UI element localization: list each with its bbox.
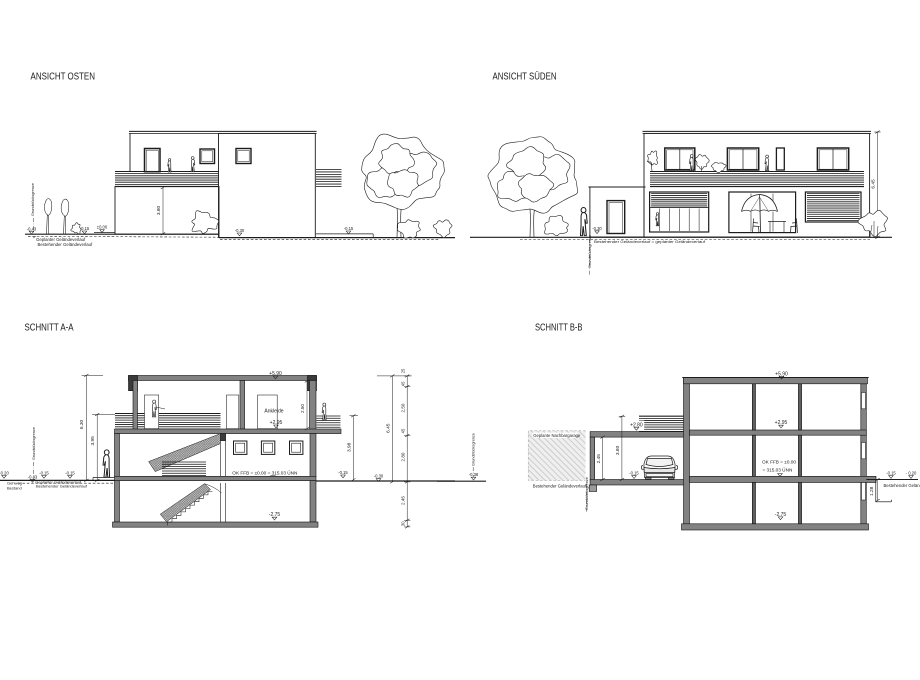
svg-text:3.80: 3.80 bbox=[156, 206, 162, 216]
svg-text:SCHNITT B-B: SCHNITT B-B bbox=[535, 323, 583, 334]
svg-text:Bestehender Geländeverlauf = g: Bestehender Geländeverlauf = geplanter G… bbox=[594, 239, 706, 244]
svg-text:-0.15: -0.15 bbox=[65, 470, 75, 475]
svg-text:Grundstücksgrenze: Grundstücksgrenze bbox=[32, 427, 36, 460]
svg-text:Bestand: Bestand bbox=[7, 486, 22, 491]
svg-text:Geplante Nachbargarage: Geplante Nachbargarage bbox=[533, 433, 581, 438]
svg-text:6.45: 6.45 bbox=[385, 423, 391, 433]
svg-text:45: 45 bbox=[400, 381, 405, 386]
svg-text:Bestehender Geländeverlauf: Bestehender Geländeverlauf bbox=[38, 242, 94, 247]
svg-text:Bestehender Geländeverlauf: Bestehender Geländeverlauf bbox=[36, 483, 88, 488]
svg-text:-0.15: -0.15 bbox=[338, 470, 348, 475]
svg-text:Grundstücksgrenze: Grundstücksgrenze bbox=[472, 433, 476, 466]
svg-text:3.80: 3.80 bbox=[615, 445, 621, 455]
svg-text:2.45: 2.45 bbox=[596, 454, 602, 464]
svg-text:-0.38: -0.38 bbox=[469, 472, 479, 477]
svg-text:2.50: 2.50 bbox=[400, 403, 405, 412]
svg-text:2.80: 2.80 bbox=[400, 452, 405, 461]
svg-text:- 0.20: - 0.20 bbox=[906, 471, 917, 476]
svg-text:ANSICHT SÜDEN: ANSICHT SÜDEN bbox=[493, 72, 557, 83]
svg-text:= 315.03 ÜNN: = 315.03 ÜNN bbox=[763, 467, 793, 473]
svg-text:30: 30 bbox=[400, 521, 405, 526]
svg-text:-0.15: -0.15 bbox=[344, 226, 354, 231]
svg-text:6.30: 6.30 bbox=[79, 420, 85, 430]
svg-text:SCHNITT A-A: SCHNITT A-A bbox=[25, 323, 74, 334]
svg-text:1.28: 1.28 bbox=[869, 486, 875, 496]
svg-text:Bestehender Geländeverlauf: Bestehender Geländeverlauf bbox=[533, 484, 587, 489]
svg-text:6.45: 6.45 bbox=[871, 179, 877, 189]
svg-text:-0.15: -0.15 bbox=[39, 470, 49, 475]
svg-text:2.50: 2.50 bbox=[300, 404, 305, 413]
svg-text:Grundstücksgrenze: Grundstücksgrenze bbox=[585, 477, 589, 510]
svg-text:45: 45 bbox=[400, 428, 405, 433]
svg-text:OK FFB = ±0.00: OK FFB = ±0.00 bbox=[762, 460, 796, 465]
svg-text:-0.30: -0.30 bbox=[592, 226, 602, 231]
svg-text:2.45: 2.45 bbox=[400, 496, 405, 505]
svg-text:Grundstücksgrenze: Grundstücksgrenze bbox=[31, 183, 35, 216]
svg-text:-0.43: -0.43 bbox=[27, 226, 37, 231]
svg-text:-0.30: -0.30 bbox=[374, 474, 384, 479]
svg-text:-0.15: -0.15 bbox=[886, 471, 896, 476]
svg-text:-0.30: -0.30 bbox=[235, 228, 245, 233]
svg-text:±0.00: ±0.00 bbox=[97, 225, 108, 230]
svg-text:3.95: 3.95 bbox=[90, 436, 96, 446]
svg-text:Bestehender Geländeverlauf: Bestehender Geländeverlauf bbox=[884, 483, 920, 488]
svg-text:-0.15: -0.15 bbox=[629, 471, 639, 476]
svg-text:ANSICHT OSTEN: ANSICHT OSTEN bbox=[31, 72, 96, 83]
svg-text:-0.20: -0.20 bbox=[0, 470, 9, 475]
svg-text:OK FFB = ±0.00 = 315.03 ÜNN: OK FFB = ±0.00 = 315.03 ÜNN bbox=[232, 469, 297, 475]
svg-text:Grundstücksgrenze: Grundstücksgrenze bbox=[588, 235, 592, 268]
svg-text:3.98: 3.98 bbox=[346, 442, 352, 452]
svg-text:25: 25 bbox=[400, 368, 405, 373]
svg-text:Ankleide: Ankleide bbox=[264, 409, 283, 415]
